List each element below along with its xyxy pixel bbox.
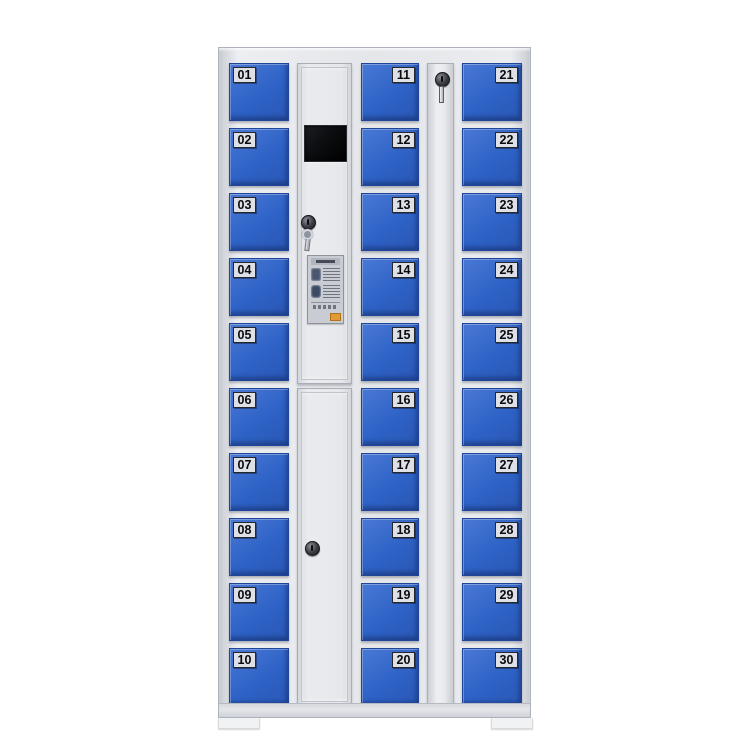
locker-cell: 24	[462, 258, 522, 316]
locker-number-plate: 06	[233, 392, 256, 408]
locker-cell: 02	[229, 128, 289, 186]
inserted-key-icon[interactable]	[439, 86, 444, 103]
locker-number-plate: 05	[233, 327, 256, 343]
locker-door-26[interactable]: 26	[462, 388, 522, 446]
locker-number-plate: 07	[233, 457, 256, 473]
locker-door-15[interactable]: 15	[361, 323, 419, 381]
locker-number-plate: 12	[392, 132, 415, 148]
locker-door-18[interactable]: 18	[361, 518, 419, 576]
locker-cell: 12	[361, 128, 419, 186]
locker-cell: 22	[462, 128, 522, 186]
locker-cell: 21	[462, 63, 522, 121]
sticker-divider	[311, 302, 340, 303]
orange-badge	[330, 313, 341, 321]
locker-number-plate: 14	[392, 262, 415, 278]
locker-column-11-20: 11121314151617181920	[361, 63, 419, 706]
locker-number-plate: 01	[233, 67, 256, 83]
locker-door-12[interactable]: 12	[361, 128, 419, 186]
locker-cell: 29	[462, 583, 522, 641]
service-door-keylock[interactable]	[305, 541, 320, 556]
locker-door-08[interactable]: 08	[229, 518, 289, 576]
locker-door-20[interactable]: 20	[361, 648, 419, 706]
display-screen[interactable]	[304, 125, 347, 162]
locker-cell: 28	[462, 518, 522, 576]
locker-door-03[interactable]: 03	[229, 193, 289, 251]
locker-cell: 14	[361, 258, 419, 316]
locker-cell: 30	[462, 648, 522, 706]
locker-door-14[interactable]: 14	[361, 258, 419, 316]
locker-door-19[interactable]: 19	[361, 583, 419, 641]
locker-cell: 17	[361, 453, 419, 511]
side-strip-keylock[interactable]	[435, 72, 450, 87]
locker-cell: 07	[229, 453, 289, 511]
locker-door-29[interactable]: 29	[462, 583, 522, 641]
locker-cell: 25	[462, 323, 522, 381]
locker-number-plate: 15	[392, 327, 415, 343]
locker-number-plate: 04	[233, 262, 256, 278]
locker-number-plate: 22	[495, 132, 518, 148]
locker-number-plate: 09	[233, 587, 256, 603]
locker-door-16[interactable]: 16	[361, 388, 419, 446]
locker-number-plate: 02	[233, 132, 256, 148]
locker-door-17[interactable]: 17	[361, 453, 419, 511]
locker-number-plate: 18	[392, 522, 415, 538]
locker-cabinet: 01020304050607080910	[218, 47, 531, 718]
locker-number-plate: 20	[392, 652, 415, 668]
locker-door-22[interactable]: 22	[462, 128, 522, 186]
locker-column-21-30: 21222324252627282930	[462, 63, 522, 706]
locker-number-plate: 19	[392, 587, 415, 603]
locker-cell: 23	[462, 193, 522, 251]
locker-door-05[interactable]: 05	[229, 323, 289, 381]
locker-door-09[interactable]: 09	[229, 583, 289, 641]
side-strip-door[interactable]	[427, 63, 454, 706]
phone-icon	[311, 285, 321, 298]
locker-cell: 11	[361, 63, 419, 121]
locker-number-plate: 10	[233, 652, 256, 668]
locker-door-23[interactable]: 23	[462, 193, 522, 251]
control-door-keylock[interactable]	[301, 215, 316, 230]
cabinet-foot-left	[218, 718, 260, 729]
locker-column-01-10: 01020304050607080910	[229, 63, 289, 706]
locker-cell: 01	[229, 63, 289, 121]
sticker-text-lines	[323, 285, 340, 298]
locker-cell: 13	[361, 193, 419, 251]
cabinet-base	[219, 703, 530, 717]
locker-number-plate: 26	[495, 392, 518, 408]
locker-cell: 18	[361, 518, 419, 576]
locker-door-21[interactable]: 21	[462, 63, 522, 121]
locker-door-30[interactable]: 30	[462, 648, 522, 706]
locker-door-27[interactable]: 27	[462, 453, 522, 511]
locker-cell: 04	[229, 258, 289, 316]
locker-number-plate: 21	[495, 67, 518, 83]
locker-cell: 27	[462, 453, 522, 511]
sticker-title-bar	[311, 258, 340, 265]
control-panel-door[interactable]	[297, 63, 352, 384]
locker-cell: 26	[462, 388, 522, 446]
sticker-text-lines	[323, 268, 340, 281]
locker-number-plate: 30	[495, 652, 518, 668]
locker-door-25[interactable]: 25	[462, 323, 522, 381]
locker-door-28[interactable]: 28	[462, 518, 522, 576]
locker-door-11[interactable]: 11	[361, 63, 419, 121]
locker-cell: 19	[361, 583, 419, 641]
cabinet-foot-right	[491, 718, 533, 729]
key-shaft	[304, 239, 310, 252]
sticker-footer-text	[313, 305, 338, 309]
locker-cell: 15	[361, 323, 419, 381]
locker-number-plate: 24	[495, 262, 518, 278]
locker-cell: 06	[229, 388, 289, 446]
locker-cell: 03	[229, 193, 289, 251]
locker-door-07[interactable]: 07	[229, 453, 289, 511]
inserted-key-icon[interactable]	[302, 229, 313, 251]
locker-cell: 20	[361, 648, 419, 706]
locker-cell: 09	[229, 583, 289, 641]
locker-cell: 16	[361, 388, 419, 446]
locker-number-plate: 16	[392, 392, 415, 408]
locker-number-plate: 27	[495, 457, 518, 473]
locker-door-10[interactable]: 10	[229, 648, 289, 706]
coin-slot-icon	[311, 268, 321, 281]
locker-number-plate: 28	[495, 522, 518, 538]
locker-cell: 10	[229, 648, 289, 706]
service-door[interactable]	[297, 388, 352, 706]
locker-number-plate: 17	[392, 457, 415, 473]
product-photo: 01020304050607080910	[0, 0, 750, 750]
locker-number-plate: 23	[495, 197, 518, 213]
locker-number-plate: 11	[392, 67, 415, 83]
locker-number-plate: 03	[233, 197, 256, 213]
locker-number-plate: 13	[392, 197, 415, 213]
locker-door-06[interactable]: 06	[229, 388, 289, 446]
locker-number-plate: 25	[495, 327, 518, 343]
locker-door-01[interactable]: 01	[229, 63, 289, 121]
instruction-sticker	[307, 255, 344, 324]
locker-door-24[interactable]: 24	[462, 258, 522, 316]
locker-door-04[interactable]: 04	[229, 258, 289, 316]
locker-number-plate: 29	[495, 587, 518, 603]
locker-cell: 08	[229, 518, 289, 576]
locker-number-plate: 08	[233, 522, 256, 538]
locker-door-13[interactable]: 13	[361, 193, 419, 251]
locker-cell: 05	[229, 323, 289, 381]
control-column	[297, 63, 352, 706]
locker-door-02[interactable]: 02	[229, 128, 289, 186]
